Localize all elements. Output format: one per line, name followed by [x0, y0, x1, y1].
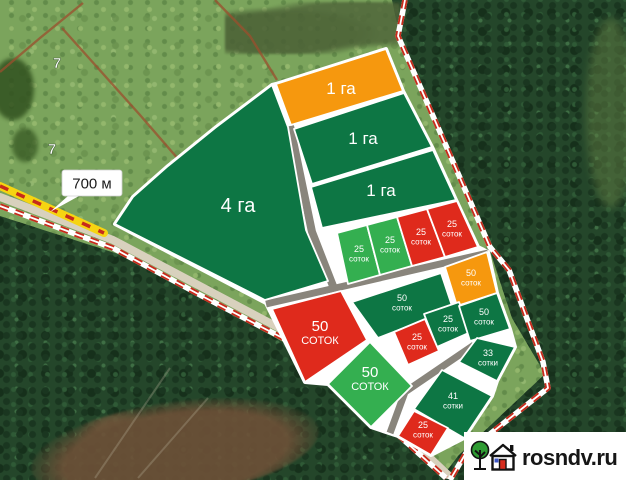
plot-1ga-b-label: 1 га: [366, 181, 396, 200]
house-door-icon: [500, 460, 507, 470]
rosndv-logo-icon: [470, 437, 518, 479]
satellite-map: 4 га1 га1 га1 га25соток25соток25соток25с…: [0, 0, 626, 480]
field-mark-7: 7: [53, 55, 61, 72]
map-svg: 4 га1 га1 га1 га25соток25соток25соток25с…: [0, 0, 626, 480]
chimney-icon: [510, 445, 513, 451]
house-window-icon: [495, 459, 499, 463]
plot-4ga-label: 4 га: [221, 195, 257, 217]
cadastral-line: [215, 0, 277, 80]
watermark-text: rosndv.ru: [522, 445, 617, 471]
forest-trail: [138, 398, 208, 478]
forest-trail: [95, 368, 170, 478]
plot-1ga-a-label: 1 га: [348, 129, 378, 148]
tree-trunk: [475, 450, 485, 469]
distance-callout-text: 700 м: [72, 176, 112, 193]
plot-1ga-orange-label: 1 га: [326, 79, 356, 98]
watermark: rosndv.ru: [464, 432, 626, 480]
field-mark-7: 7: [48, 141, 56, 158]
